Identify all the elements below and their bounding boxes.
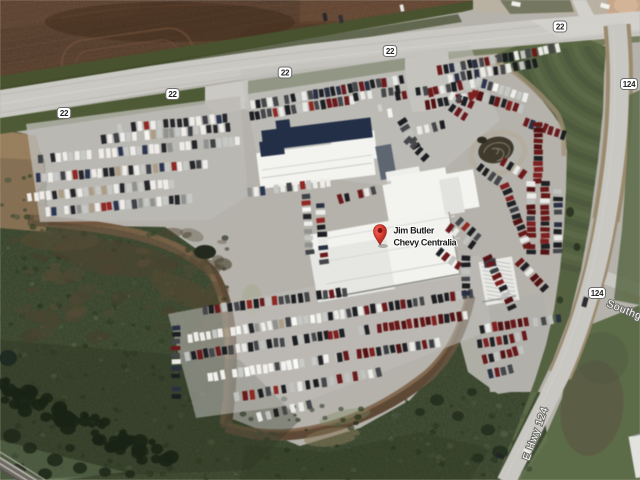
svg-text:Jim Butler: Jim Butler: [394, 226, 435, 236]
svg-text:22: 22: [281, 68, 290, 77]
svg-text:22: 22: [556, 22, 565, 31]
svg-text:22: 22: [60, 109, 69, 118]
svg-text:Chevy Centralia: Chevy Centralia: [394, 238, 458, 248]
svg-text:124: 124: [623, 80, 636, 89]
svg-text:124: 124: [591, 289, 604, 298]
svg-text:22: 22: [168, 90, 177, 99]
svg-text:22: 22: [386, 47, 395, 56]
